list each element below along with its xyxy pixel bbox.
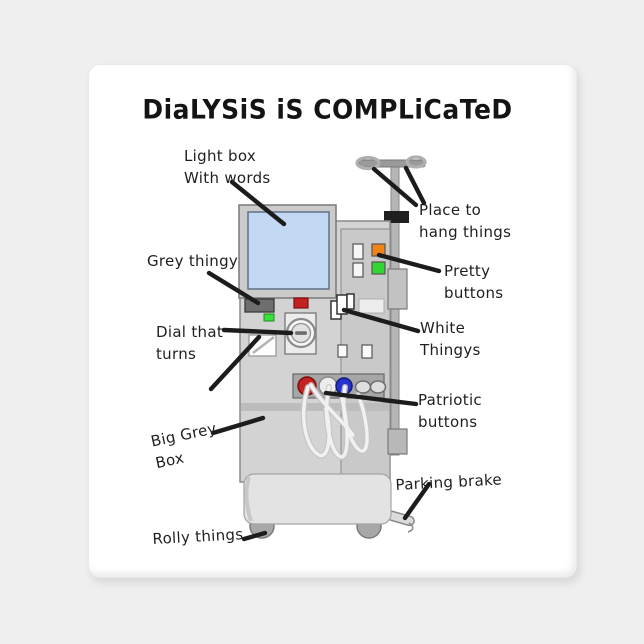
label-text: Place to [419,200,511,222]
label-text: Pretty [444,261,503,283]
grey-oval-button-2 [371,381,386,393]
panel-card [359,299,384,313]
grey-thingy-display [245,299,274,312]
monitor-screen [248,212,329,289]
label-text: With words [184,168,271,190]
label-dial-that-turns: Dial that turns [156,322,223,365]
base-pedestal [244,474,391,524]
label-text: buttons [418,412,482,434]
label-pretty-buttons: Pretty buttons [444,261,503,304]
label-grey-thingy: Grey thingy [147,251,238,273]
label-light-box: Light box With words [184,146,271,189]
green-indicator [264,314,274,321]
label-text: buttons [444,283,503,305]
label-patriotic-buttons: Patriotic buttons [418,390,482,433]
mid-switch-1 [338,345,347,357]
leader-dial [224,330,291,333]
label-text: Light box [184,146,271,168]
dial-pointer [295,331,307,335]
label-text: turns [156,344,223,366]
label-text: Patriotic [418,390,482,412]
pole-bracket-lower [388,429,407,454]
pole-bracket-upper [388,269,407,309]
green-button [372,262,385,274]
label-white-thingys: White Thingys [420,318,481,361]
label-text: Thingys [420,340,481,362]
mid-switch-2 [362,345,372,358]
label-text: Dial that [156,322,223,344]
label-text: hang things [419,222,511,244]
panel-switch-2 [353,263,363,277]
clamp-3 [347,294,354,309]
machine-illustration [89,65,576,577]
magnet: DiaLYSiS iS COMPLiCaTeD [88,64,577,578]
body-stripe [241,403,389,411]
grey-oval-button-1 [356,381,371,393]
label-text: White [420,318,481,340]
label-text: Grey thingy [147,251,238,273]
label-place-to-hang: Place to hang things [419,200,511,243]
red-square-button [294,298,308,308]
panel-switch-1 [353,244,363,259]
